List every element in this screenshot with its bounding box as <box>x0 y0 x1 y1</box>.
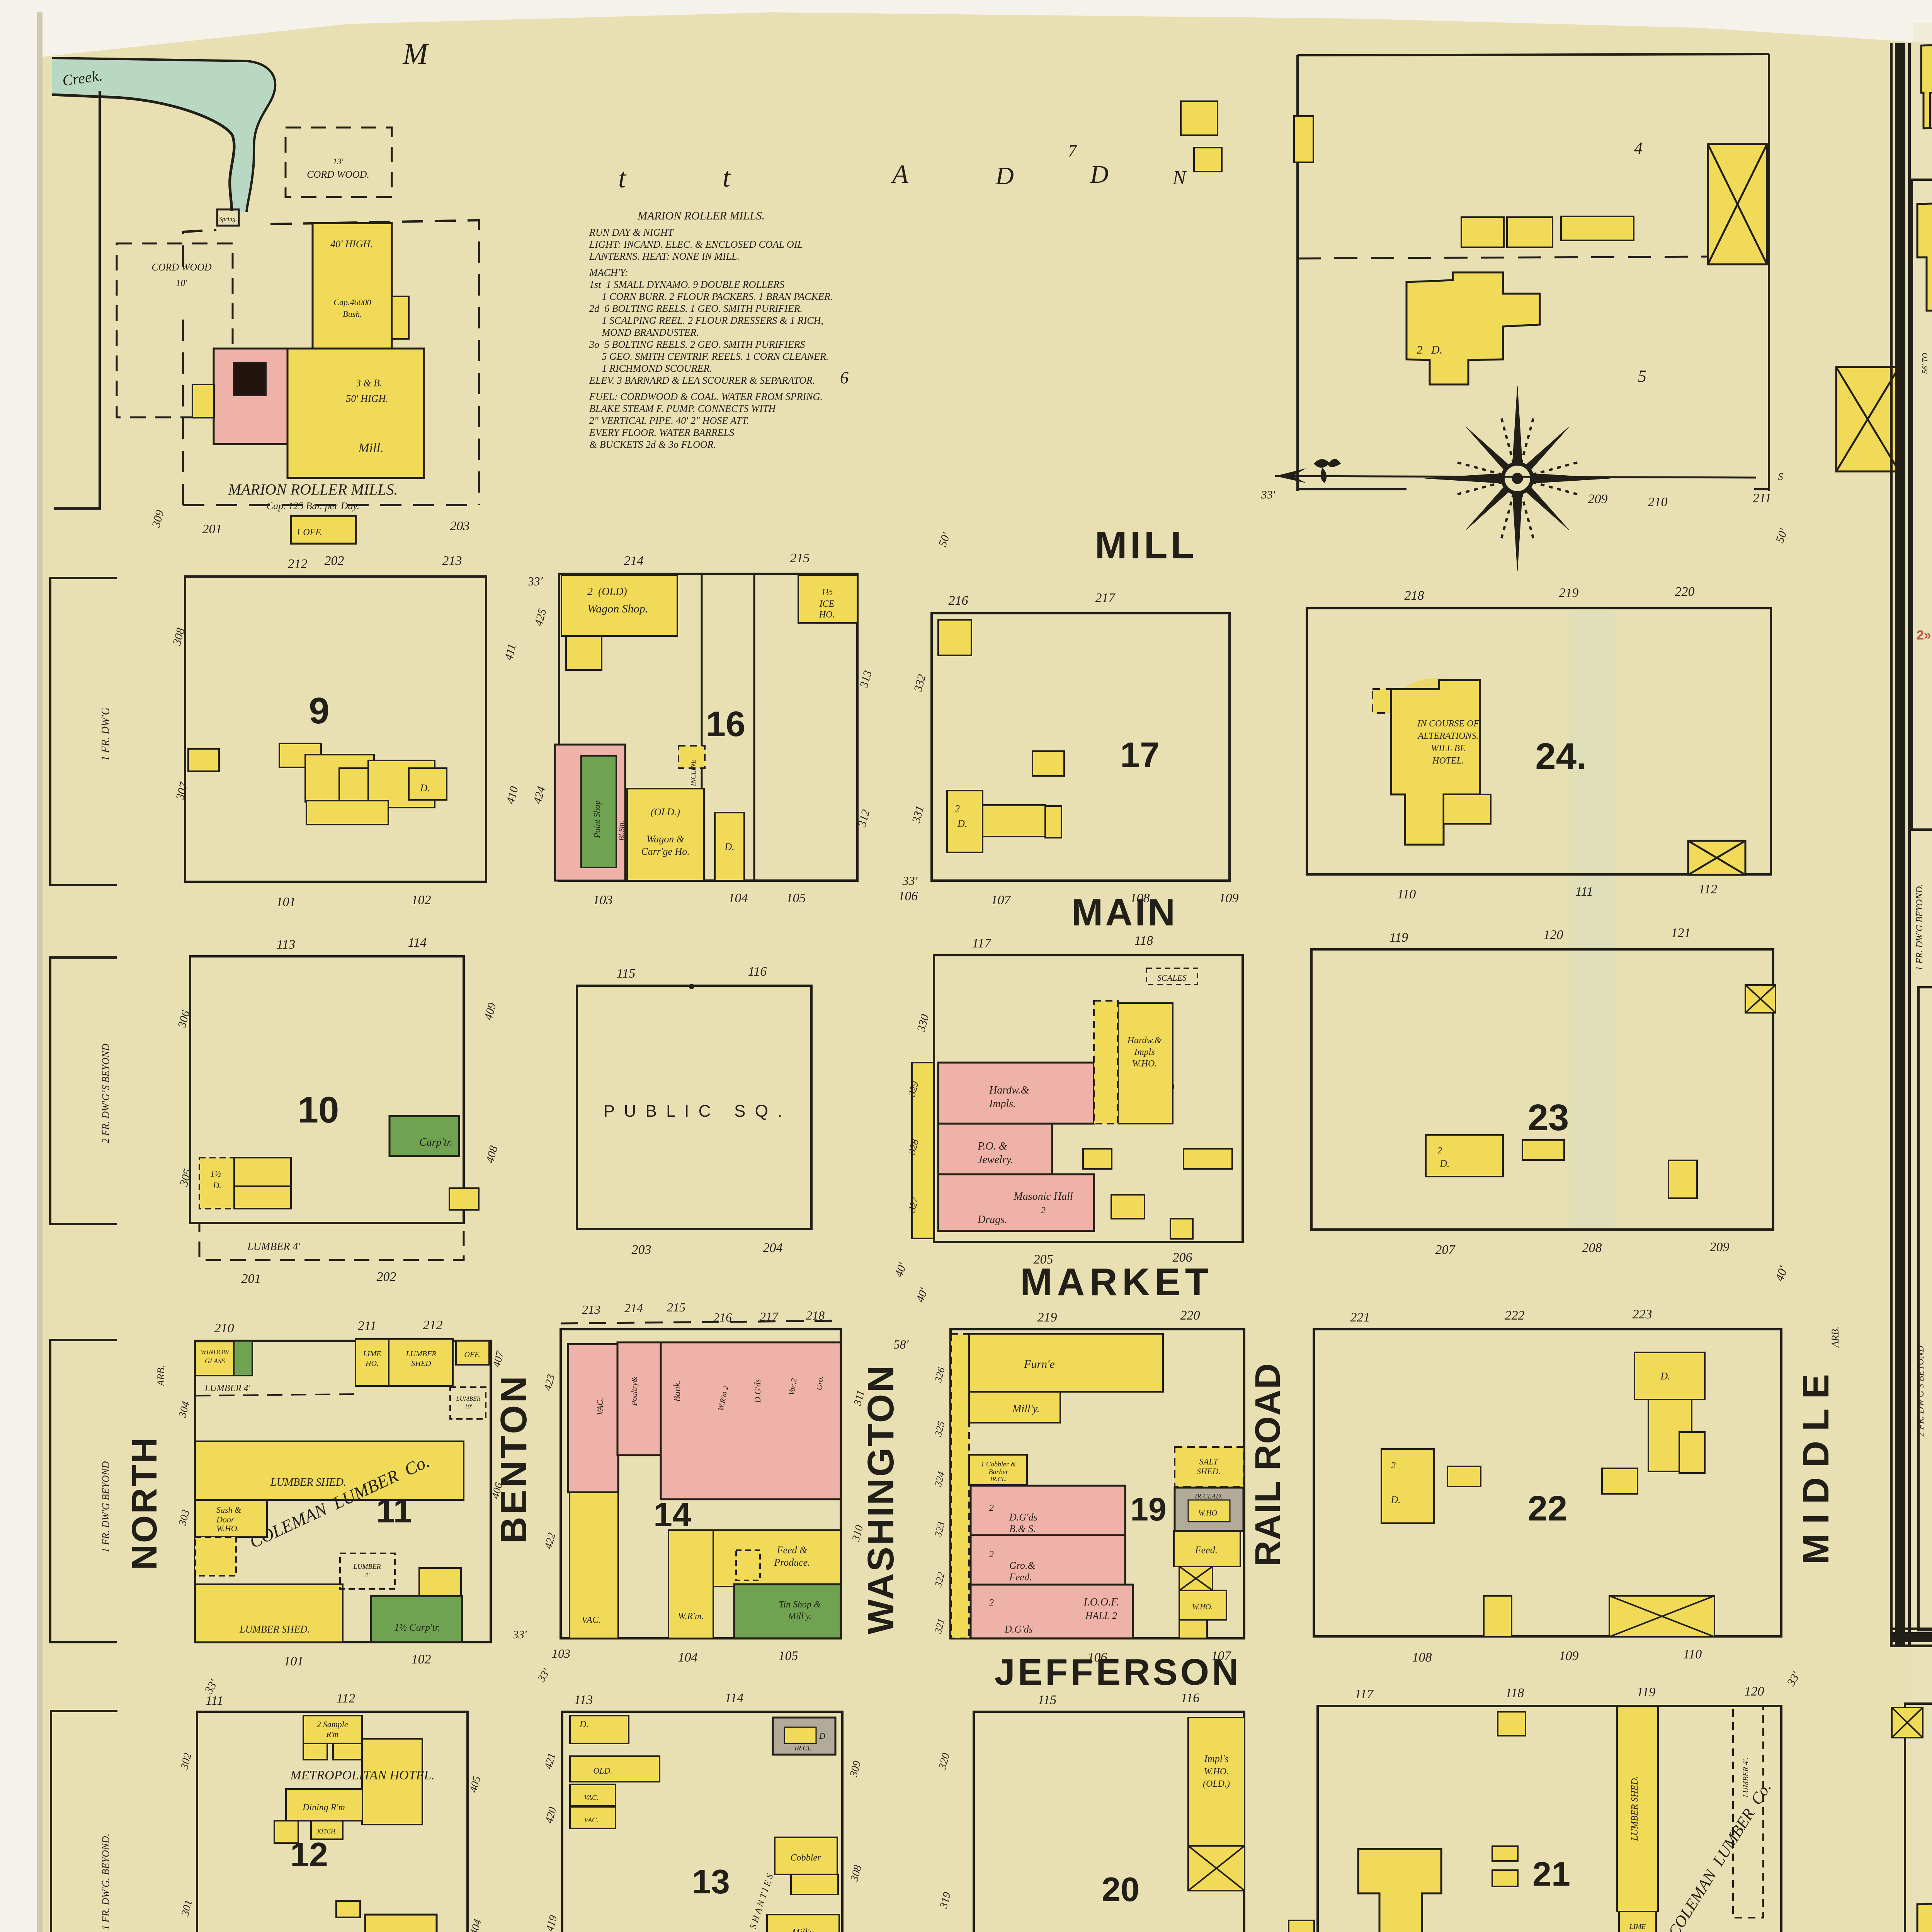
svg-text:W.HO.: W.HO. <box>1192 1603 1213 1611</box>
svg-text:Produce.: Produce. <box>774 1557 810 1568</box>
svg-text:M: M <box>403 37 430 70</box>
svg-text:210: 210 <box>1648 495 1668 509</box>
svg-text:(OLD.): (OLD.) <box>651 806 680 818</box>
svg-text:101: 101 <box>284 1654 304 1668</box>
svg-text:VAC.: VAC. <box>582 1615 601 1625</box>
svg-text:JEFFERSON: JEFFERSON <box>994 1651 1241 1693</box>
svg-text:I.O.O.F.: I.O.O.F. <box>1083 1596 1119 1608</box>
svg-text:4': 4' <box>365 1571 370 1579</box>
svg-text:A: A <box>891 159 908 189</box>
svg-text:106: 106 <box>898 889 918 903</box>
svg-text:202: 202 <box>325 554 344 568</box>
svg-text:Bl.Sm.: Bl.Sm. <box>617 821 626 841</box>
svg-text:106: 106 <box>1088 1650 1107 1665</box>
svg-text:Mill.: Mill. <box>358 441 383 455</box>
svg-text:Drugs.: Drugs. <box>977 1214 1007 1226</box>
svg-text:2: 2 <box>989 1503 994 1513</box>
svg-text:2» COPY DEL TO MAP DIV.: 2» COPY DEL TO MAP DIV. <box>1917 628 1932 643</box>
svg-text:207: 207 <box>1435 1243 1456 1257</box>
svg-text:Wagon Shop.: Wagon Shop. <box>587 602 648 615</box>
svg-text:104: 104 <box>678 1650 698 1665</box>
svg-text:Sash &: Sash & <box>216 1505 241 1515</box>
svg-text:40' HIGH.: 40' HIGH. <box>330 238 373 250</box>
svg-text:121: 121 <box>1671 926 1691 940</box>
svg-text:10: 10 <box>298 1089 339 1131</box>
svg-text:P U B L I C S Q .: P U B L I C S Q . <box>604 1102 785 1121</box>
svg-text:LUMBER: LUMBER <box>456 1396 480 1402</box>
svg-text:Cobbler: Cobbler <box>791 1853 821 1863</box>
svg-text:211: 211 <box>358 1319 376 1333</box>
svg-text:Paint Shop: Paint Shop <box>592 800 602 838</box>
svg-text:WINDOW: WINDOW <box>201 1348 230 1356</box>
svg-text:216: 216 <box>949 594 968 608</box>
svg-text:Hardw.&: Hardw.& <box>989 1084 1029 1096</box>
svg-text:2: 2 <box>1041 1206 1046 1216</box>
svg-text:22: 22 <box>1528 1489 1567 1528</box>
svg-text:216: 216 <box>713 1310 732 1324</box>
svg-text:MILL: MILL <box>1095 524 1197 567</box>
svg-text:105: 105 <box>779 1649 798 1663</box>
svg-text:D.G'ds: D.G'ds <box>1009 1512 1037 1523</box>
svg-text:1½ Carp'tr.: 1½ Carp'tr. <box>395 1622 440 1633</box>
svg-text:17: 17 <box>1120 735 1160 775</box>
svg-text:ARB.: ARB. <box>155 1365 167 1387</box>
svg-text:LIME: LIME <box>363 1350 381 1358</box>
svg-text:215: 215 <box>667 1300 685 1314</box>
svg-text:1 FR. DW'G BEYOND: 1 FR. DW'G BEYOND <box>100 1461 111 1553</box>
svg-text:203: 203 <box>450 519 470 533</box>
svg-text:Feed &: Feed & <box>777 1544 808 1556</box>
svg-text:115: 115 <box>617 966 635 981</box>
svg-text:16: 16 <box>706 704 745 744</box>
svg-text:2 Sample: 2 Sample <box>316 1719 348 1729</box>
svg-text:13: 13 <box>692 1862 730 1901</box>
svg-text:213: 213 <box>582 1303 600 1316</box>
svg-text:107: 107 <box>1211 1649 1232 1663</box>
svg-text:Door: Door <box>216 1515 235 1524</box>
svg-text:VAC.: VAC. <box>584 1816 598 1824</box>
svg-text:218: 218 <box>1405 588 1424 603</box>
svg-text:W.R'm.: W.R'm. <box>678 1611 704 1621</box>
svg-text:102: 102 <box>412 893 431 907</box>
svg-text:120: 120 <box>1745 1684 1764 1699</box>
svg-text:117: 117 <box>1355 1687 1374 1701</box>
svg-text:Carp'tr.: Carp'tr. <box>419 1136 452 1148</box>
svg-text:116: 116 <box>1181 1691 1199 1705</box>
svg-text:MARKET: MARKET <box>1020 1260 1213 1304</box>
svg-text:102: 102 <box>412 1652 431 1667</box>
svg-text:56' TO: 56' TO <box>1921 353 1929 374</box>
svg-text:(OLD.): (OLD.) <box>1203 1779 1230 1789</box>
svg-text:ARB.: ARB. <box>1830 1327 1841 1348</box>
svg-text:220: 220 <box>1180 1308 1200 1323</box>
svg-text:RAIL ROAD: RAIL ROAD <box>1248 1362 1287 1566</box>
svg-text:D.: D. <box>1390 1494 1400 1505</box>
svg-text:Feed.: Feed. <box>1195 1544 1218 1556</box>
svg-text:LIGHT: INCAND. ELEC. & ENCLOSE: LIGHT: INCAND. ELEC. & ENCLOSED COAL OIL <box>589 239 803 250</box>
svg-text:Impls: Impls <box>1134 1047 1155 1057</box>
svg-text:LUMBER SHED.: LUMBER SHED. <box>1630 1776 1640 1841</box>
svg-text:1 FR. DW'G BEYOND.: 1 FR. DW'G BEYOND. <box>1915 884 1925 971</box>
svg-text:208: 208 <box>1582 1241 1602 1255</box>
svg-text:211: 211 <box>1753 491 1771 505</box>
svg-text:1 Cobbler &: 1 Cobbler & <box>981 1460 1016 1468</box>
svg-text:117: 117 <box>972 936 992 951</box>
svg-text:114: 114 <box>408 935 427 950</box>
svg-text:VAC.: VAC. <box>595 1398 605 1415</box>
svg-text:OFF.: OFF. <box>464 1350 480 1359</box>
svg-text:21: 21 <box>1532 1855 1570 1893</box>
svg-text:119: 119 <box>1389 930 1408 945</box>
svg-text:HOTEL.: HOTEL. <box>1432 756 1464 766</box>
svg-text:Gro.&: Gro.& <box>1009 1560 1036 1571</box>
svg-text:D.: D. <box>1660 1371 1670 1382</box>
svg-text:CORD WOOD.: CORD WOOD. <box>307 169 369 180</box>
svg-text:LANTERNS. HEAT: NONE IN MILL.: LANTERNS. HEAT: NONE IN MILL. <box>589 251 740 262</box>
svg-text:1 SCALPING REEL. 2 FLOUR DRESS: 1 SCALPING REEL. 2 FLOUR DRESSERS & 1 RI… <box>589 315 823 326</box>
svg-text:SCALES: SCALES <box>1157 973 1187 983</box>
svg-text:33': 33' <box>1261 488 1276 501</box>
svg-text:LUMBER 4': LUMBER 4' <box>247 1241 301 1253</box>
svg-text:D: D <box>819 1731 825 1741</box>
svg-text:NORTH: NORTH <box>125 1436 164 1570</box>
svg-text:MIDDLE: MIDDLE <box>1795 1364 1837 1565</box>
svg-text:MARION ROLLER MILLS.: MARION ROLLER MILLS. <box>637 209 765 222</box>
svg-text:1½: 1½ <box>210 1169 221 1179</box>
svg-text:2: 2 <box>1391 1461 1396 1471</box>
svg-text:MARION ROLLER MILLS.: MARION ROLLER MILLS. <box>228 481 398 498</box>
svg-text:110: 110 <box>1683 1647 1702 1662</box>
svg-text:GLASS: GLASS <box>205 1357 225 1365</box>
svg-text:219: 219 <box>1559 586 1579 600</box>
svg-text:WASHINGTON: WASHINGTON <box>860 1364 901 1634</box>
svg-text:3o 5 BOLTING REELS. 2 GEO. SM: 3o 5 BOLTING REELS. 2 GEO. SMITH PURIFIE… <box>589 339 805 350</box>
svg-text:KITCH.: KITCH. <box>316 1828 337 1835</box>
svg-text:MAIN: MAIN <box>1071 891 1177 934</box>
svg-text:218: 218 <box>806 1308 825 1322</box>
svg-text:212: 212 <box>288 557 308 571</box>
svg-text:206: 206 <box>1173 1250 1192 1265</box>
svg-text:209: 209 <box>1588 492 1608 506</box>
svg-text:203: 203 <box>632 1243 651 1257</box>
svg-text:t: t <box>723 162 731 193</box>
svg-text:HO.: HO. <box>365 1359 379 1368</box>
svg-text:D.: D. <box>213 1180 221 1190</box>
svg-text:BLAKE STEAM F. PUMP. CONNECTS: BLAKE STEAM F. PUMP. CONNECTS WITH <box>589 403 776 414</box>
svg-text:2: 2 <box>1437 1146 1442 1156</box>
svg-text:VAC.: VAC. <box>584 1794 598 1801</box>
svg-text:LUMBER: LUMBER <box>353 1563 381 1570</box>
svg-text:Impls.: Impls. <box>989 1098 1016 1110</box>
svg-text:IR.CLAD.: IR.CLAD. <box>1194 1492 1223 1500</box>
svg-text:SHED: SHED <box>411 1359 431 1368</box>
svg-text:FUEL: CORDWOOD & COAL. WATER F: FUEL: CORDWOOD & COAL. WATER FROM SPRING… <box>589 391 823 402</box>
svg-text:112: 112 <box>337 1691 355 1706</box>
svg-text:LUMBER 4'.: LUMBER 4'. <box>1742 1757 1750 1798</box>
svg-text:Bank.: Bank. <box>672 1380 682 1401</box>
svg-text:109: 109 <box>1559 1649 1579 1663</box>
svg-text:LUMBER: LUMBER <box>406 1350 437 1358</box>
svg-text:ALTERATIONS.: ALTERATIONS. <box>1417 731 1479 741</box>
svg-text:W.HO.: W.HO. <box>216 1524 239 1533</box>
svg-text:101: 101 <box>276 895 296 909</box>
svg-text:223: 223 <box>1633 1307 1652 1321</box>
svg-text:115: 115 <box>1038 1693 1056 1707</box>
svg-text:D.: D. <box>724 841 734 852</box>
svg-text:B.& S.: B.& S. <box>1009 1523 1036 1534</box>
svg-text:20: 20 <box>1102 1870 1139 1908</box>
svg-text:W.HO.: W.HO. <box>1204 1767 1229 1777</box>
svg-text:LIME: LIME <box>1629 1923 1646 1930</box>
svg-text:Mill'y.: Mill'y. <box>788 1611 811 1621</box>
svg-text:CORD WOOD: CORD WOOD <box>151 262 211 273</box>
svg-text:50' HIGH.: 50' HIGH. <box>346 393 388 404</box>
svg-text:1 CORN BURR. 2 FLOUR PACKERS.: 1 CORN BURR. 2 FLOUR PACKERS. 1 BRAN PAC… <box>589 291 833 302</box>
svg-text:Furn'e: Furn'e <box>1024 1358 1055 1371</box>
svg-text:221: 221 <box>1350 1310 1370 1325</box>
svg-text:58': 58' <box>894 1337 909 1351</box>
svg-text:Bush.: Bush. <box>343 309 362 319</box>
svg-text:33': 33' <box>527 574 543 588</box>
svg-text:13': 13' <box>333 156 344 166</box>
svg-text:103: 103 <box>552 1646 570 1660</box>
svg-text:D.: D. <box>1439 1158 1449 1169</box>
svg-text:EVERY FLOOR. WATER BARRELS: EVERY FLOOR. WATER BARRELS <box>589 427 734 438</box>
svg-text:14: 14 <box>653 1495 691 1534</box>
svg-text:1½: 1½ <box>821 587 833 597</box>
svg-text:ELEV. 3 BARNARD & LEA SCOURER: ELEV. 3 BARNARD & LEA SCOURER & SEPARATO… <box>589 375 815 386</box>
svg-text:1 OFF.: 1 OFF. <box>296 527 322 537</box>
svg-text:103: 103 <box>593 893 613 907</box>
svg-text:LUMBER 4': LUMBER 4' <box>204 1383 251 1393</box>
svg-text:R'm: R'm <box>326 1730 338 1739</box>
svg-text:1st 1 SMALL DYNAMO. 9 DOUBLE: 1st 1 SMALL DYNAMO. 9 DOUBLE ROLLERS <box>589 279 784 290</box>
svg-text:2: 2 <box>989 1549 994 1560</box>
svg-text:1 FR. DW'G. BEYOND.: 1 FR. DW'G. BEYOND. <box>100 1833 111 1930</box>
svg-text:10': 10' <box>176 278 187 288</box>
svg-text:108: 108 <box>1130 891 1150 905</box>
svg-text:ICE: ICE <box>819 599 835 609</box>
svg-text:118: 118 <box>1505 1686 1524 1700</box>
svg-text:HALL 2: HALL 2 <box>1085 1610 1117 1621</box>
svg-text:D: D <box>1090 160 1109 189</box>
svg-text:N: N <box>1172 167 1187 189</box>
svg-text:24.: 24. <box>1535 736 1587 777</box>
svg-text:113: 113 <box>277 937 295 952</box>
svg-text:HO.: HO. <box>819 610 835 620</box>
svg-text:23: 23 <box>1528 1097 1569 1138</box>
svg-text:202: 202 <box>377 1270 396 1284</box>
svg-text:212: 212 <box>423 1318 443 1332</box>
svg-text:D.G'ds: D.G'ds <box>753 1379 762 1403</box>
svg-text:201: 201 <box>241 1272 261 1286</box>
svg-text:SHED.: SHED. <box>1197 1466 1221 1476</box>
svg-text:Hardw.&: Hardw.& <box>1127 1036 1162 1046</box>
svg-text:IR.CL.: IR.CL. <box>990 1476 1007 1483</box>
svg-text:Mill'y.: Mill'y. <box>792 1927 815 1932</box>
svg-text:MACH'Y:: MACH'Y: <box>589 267 628 278</box>
svg-text:2 (OLD): 2 (OLD) <box>587 586 627 598</box>
svg-text:33': 33' <box>902 874 918 888</box>
svg-text:6: 6 <box>840 368 849 387</box>
svg-text:219: 219 <box>1037 1310 1057 1325</box>
svg-text:D.: D. <box>957 818 967 829</box>
svg-text:104: 104 <box>728 891 748 905</box>
svg-text:215: 215 <box>790 551 810 565</box>
svg-text:2: 2 <box>955 804 960 814</box>
svg-text:9: 9 <box>309 690 329 731</box>
svg-text:Spring.: Spring. <box>219 216 237 223</box>
svg-text:Dining R'm: Dining R'm <box>302 1803 345 1813</box>
svg-text:P.O. &: P.O. & <box>977 1140 1007 1152</box>
svg-text:2 D.: 2 D. <box>1417 344 1443 356</box>
svg-text:214: 214 <box>624 1301 643 1315</box>
svg-text:118: 118 <box>1134 934 1153 948</box>
svg-text:RUN DAY & NIGHT: RUN DAY & NIGHT <box>589 227 674 238</box>
svg-text:222: 222 <box>1505 1308 1525 1323</box>
svg-text:Cap. 125 Bar. per Day.: Cap. 125 Bar. per Day. <box>267 500 360 512</box>
svg-text:120: 120 <box>1544 928 1563 942</box>
svg-text:2" VERTICAL PIPE. 40' 2" HOSE: 2" VERTICAL PIPE. 40' 2" HOSE ATT. <box>589 415 749 426</box>
svg-text:19: 19 <box>1130 1491 1166 1527</box>
svg-text:217: 217 <box>760 1310 779 1323</box>
svg-text:Cap.46000: Cap.46000 <box>333 298 371 307</box>
svg-text:LUMBER SHED.: LUMBER SHED. <box>239 1624 310 1635</box>
svg-text:10': 10' <box>464 1403 472 1410</box>
svg-text:METROPOLITAN HOTEL.: METROPOLITAN HOTEL. <box>290 1768 434 1782</box>
svg-text:220: 220 <box>1675 585 1695 599</box>
svg-text:MOND BRANDUSTER.: MOND BRANDUSTER. <box>589 327 699 338</box>
svg-text:110: 110 <box>1397 887 1416 901</box>
svg-text:116: 116 <box>748 964 767 979</box>
svg-text:213: 213 <box>442 554 462 568</box>
svg-text:112: 112 <box>1699 882 1717 896</box>
svg-text:Gro.: Gro. <box>815 1376 825 1390</box>
svg-text:Mill'y.: Mill'y. <box>1012 1403 1040 1415</box>
svg-text:5: 5 <box>1638 367 1646 386</box>
svg-text:IN COURSE OF: IN COURSE OF <box>1417 719 1479 729</box>
svg-text:3 & B.: 3 & B. <box>355 378 383 389</box>
svg-text:119: 119 <box>1637 1685 1655 1699</box>
svg-text:Impl's: Impl's <box>1204 1753 1228 1764</box>
svg-text:Tin Shop &: Tin Shop & <box>779 1600 821 1610</box>
svg-text:209: 209 <box>1710 1240 1730 1254</box>
svg-text:2d 6 BOLTING REELS. 1 GEO. SM: 2d 6 BOLTING REELS. 1 GEO. SMITH PURIFIE… <box>589 303 803 314</box>
svg-text:INCLINE: INCLINE <box>689 759 697 786</box>
svg-text:Barber: Barber <box>989 1468 1009 1476</box>
svg-text:2: 2 <box>989 1598 994 1608</box>
svg-text:108: 108 <box>1412 1650 1432 1665</box>
svg-text:D.: D. <box>420 782 430 794</box>
svg-text:113: 113 <box>574 1693 593 1707</box>
svg-text:Poultry&: Poultry& <box>630 1376 639 1406</box>
svg-text:205: 205 <box>1034 1252 1053 1267</box>
svg-text:5 GEO. SMITH CENTRIF. REELS. 1: 5 GEO. SMITH CENTRIF. REELS. 1 CORN CLEA… <box>589 351 828 362</box>
svg-text:LUMBER SHED.: LUMBER SHED. <box>270 1476 346 1488</box>
svg-text:210: 210 <box>214 1321 234 1335</box>
svg-text:105: 105 <box>786 891 806 905</box>
svg-text:201: 201 <box>202 522 222 536</box>
svg-text:BENTON: BENTON <box>493 1374 534 1544</box>
svg-text:t: t <box>618 163 627 194</box>
svg-text:7: 7 <box>1068 141 1077 160</box>
svg-text:SALT: SALT <box>1199 1457 1219 1466</box>
svg-text:1 FR. DW'G: 1 FR. DW'G <box>100 707 112 761</box>
svg-text:Jewelry.: Jewelry. <box>978 1154 1014 1166</box>
svg-text:2 FR. DW'G'S BEYOND: 2 FR. DW'G'S BEYOND <box>1916 1345 1926 1437</box>
svg-text:W.HO.: W.HO. <box>1198 1509 1219 1517</box>
svg-text:Feed.: Feed. <box>1009 1571 1032 1583</box>
svg-text:Wagon &: Wagon & <box>646 833 685 845</box>
svg-text:204: 204 <box>763 1241 783 1255</box>
svg-text:2 FR. DW'G’S BEYOND: 2 FR. DW'G’S BEYOND <box>100 1044 111 1144</box>
svg-text:& BUCKETS 2d & 3o FLOOR.: & BUCKETS 2d & 3o FLOOR. <box>589 439 716 450</box>
svg-text:217: 217 <box>1095 591 1116 605</box>
svg-text:109: 109 <box>1219 891 1239 905</box>
svg-text:WILL BE: WILL BE <box>1431 743 1466 753</box>
svg-text:33': 33' <box>512 1628 527 1641</box>
svg-text:114: 114 <box>725 1691 743 1705</box>
svg-text:214: 214 <box>624 554 644 568</box>
svg-text:111: 111 <box>206 1694 223 1708</box>
svg-text:4: 4 <box>1634 139 1643 158</box>
svg-text:D.: D. <box>579 1719 588 1730</box>
svg-text:IR.CL.: IR.CL. <box>794 1744 813 1752</box>
svg-text:Masonic Hall: Masonic Hall <box>1013 1190 1073 1202</box>
svg-text:S: S <box>1778 471 1783 482</box>
svg-text:D: D <box>995 162 1014 190</box>
svg-text:OLD.: OLD. <box>593 1766 612 1776</box>
svg-text:D.G'ds: D.G'ds <box>1004 1624 1033 1635</box>
svg-text:1 RICHMOND SCOURER.: 1 RICHMOND SCOURER. <box>589 363 712 374</box>
svg-text:Carr'ge Ho.: Carr'ge Ho. <box>641 846 689 857</box>
svg-text:107: 107 <box>991 893 1012 907</box>
svg-text:111: 111 <box>1575 884 1593 899</box>
svg-text:W.HO.: W.HO. <box>1132 1059 1157 1069</box>
